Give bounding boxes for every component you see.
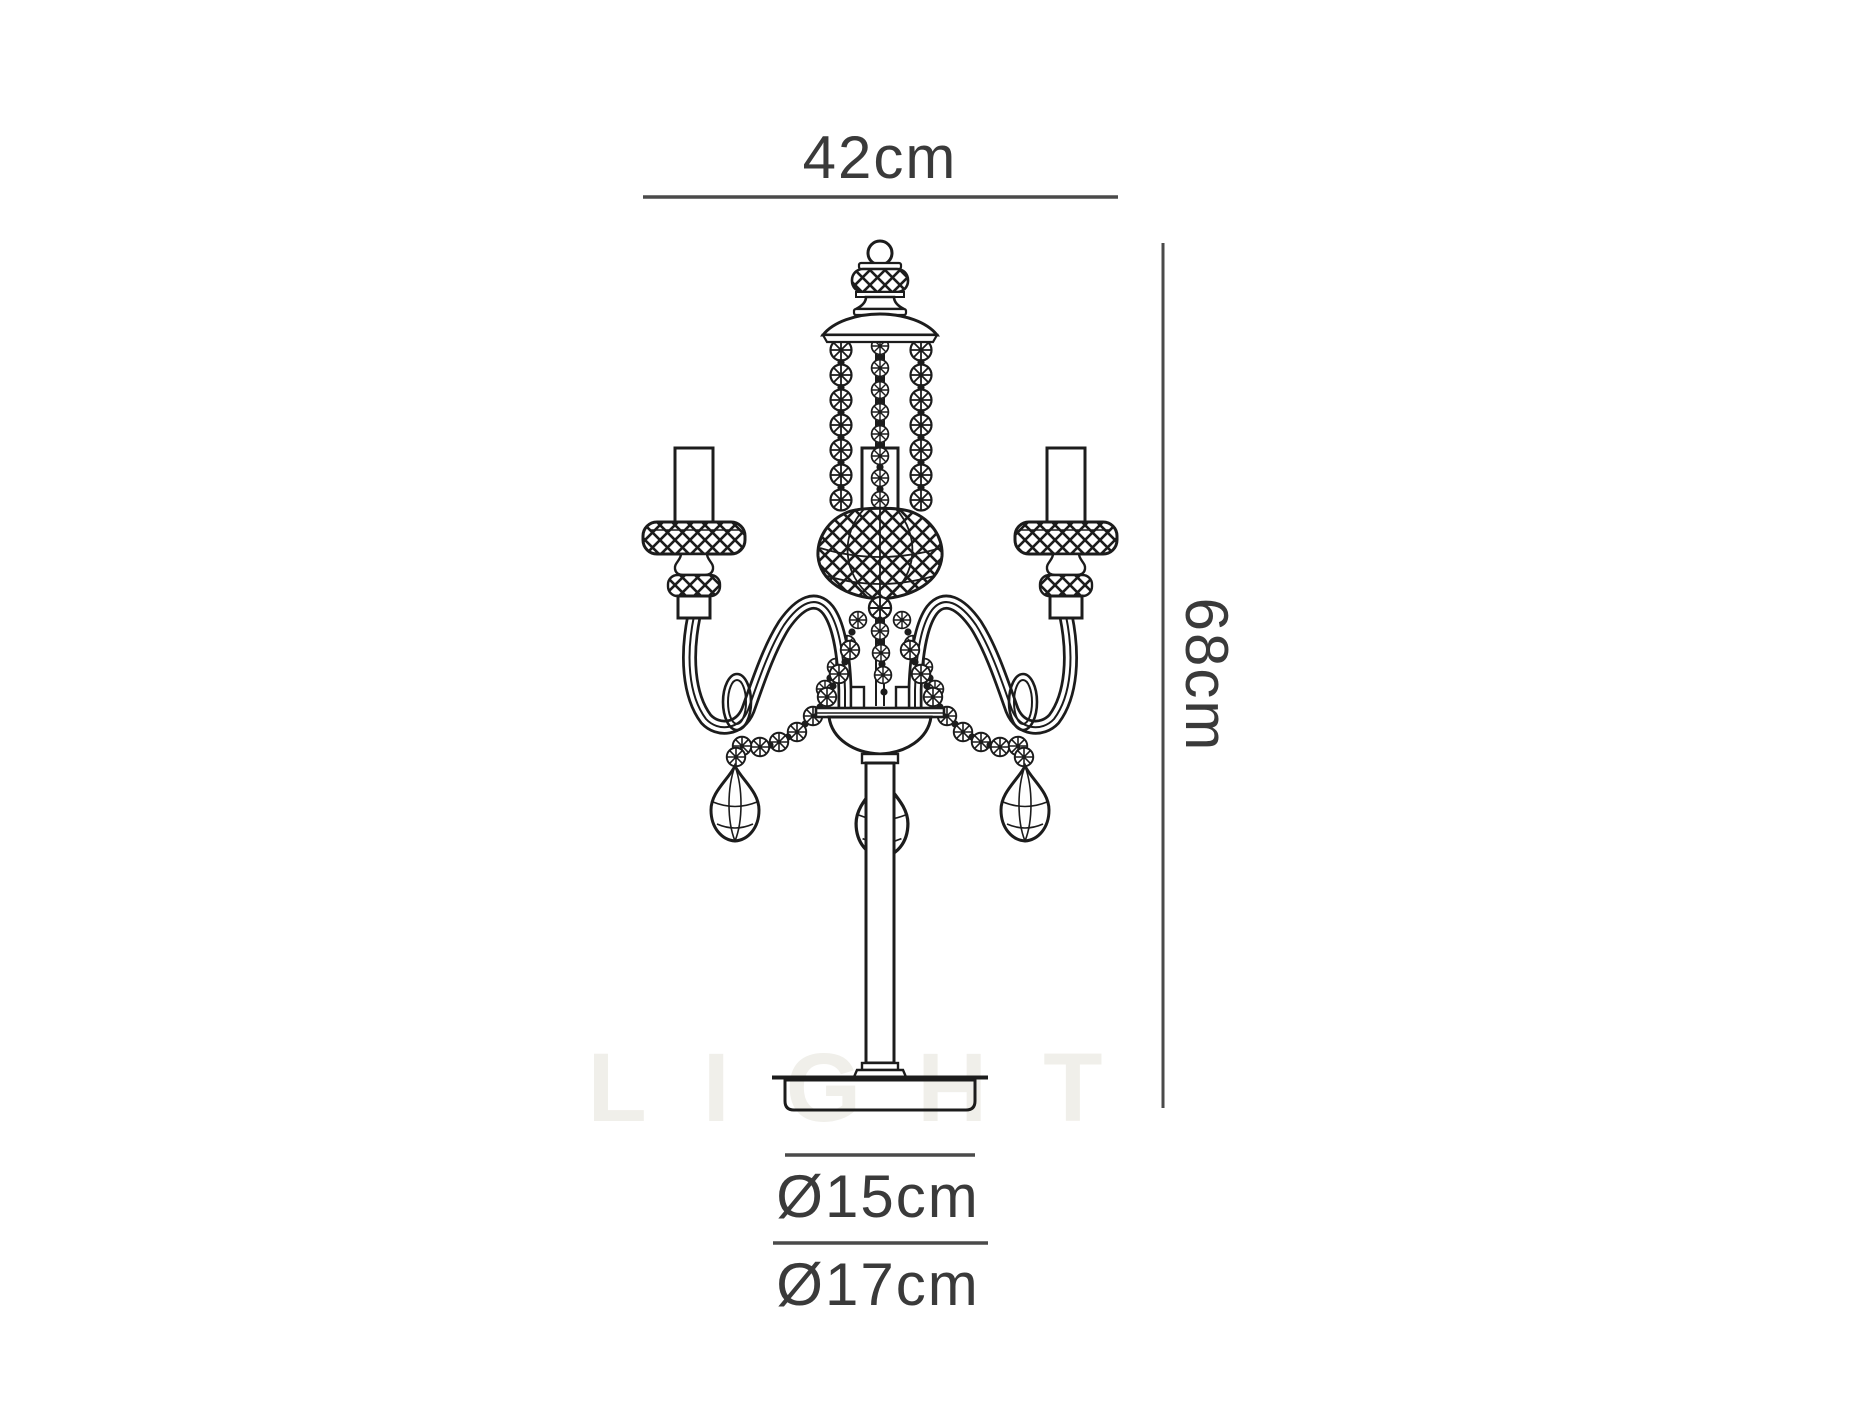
width-dimension-label: 42cm [803,124,958,191]
diagram-page: LIGHT 42cm 68cm Ø15cm Ø17cm [0,0,1850,1407]
canopy-rim [823,335,937,342]
finial [823,241,937,342]
right-arm-assembly [901,448,1117,841]
crystal-knob [852,269,908,292]
finial-ball [868,241,892,265]
stem-flange [854,1063,906,1077]
left-arm-assembly [643,448,859,841]
lamp [643,241,1117,1110]
inner-diameter-label: Ø15cm [776,1163,979,1230]
height-dimension-label: 68cm [1173,598,1240,753]
bowl [829,717,931,754]
finial-neck [856,297,904,309]
lamp-technical-drawing: LIGHT 42cm 68cm Ø15cm Ø17cm [0,0,1850,1407]
canopy [823,314,937,335]
stem [866,763,894,1063]
outer-diameter-label: Ø17cm [776,1251,979,1318]
crystal-basket [818,507,942,624]
